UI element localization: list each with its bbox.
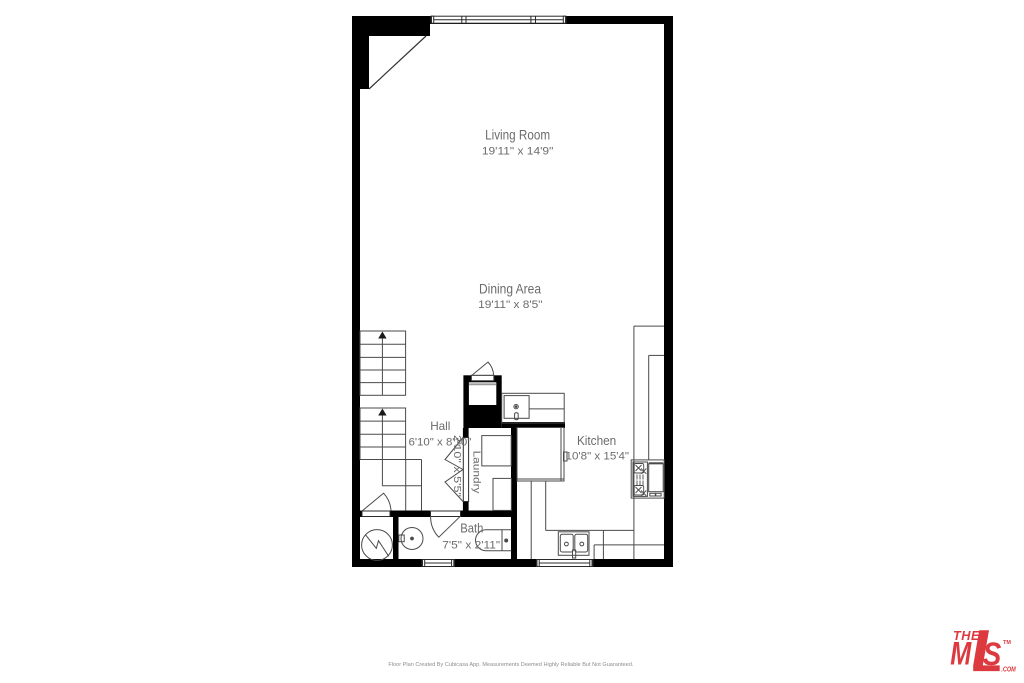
svg-text:Floor Plan Created By Cubicasa: Floor Plan Created By Cubicasa App. Meas… [388, 662, 633, 668]
svg-text:Bath: Bath [460, 521, 483, 536]
svg-text:10'8" x 15'4": 10'8" x 15'4" [566, 451, 630, 463]
svg-text:19'11" x 14'9": 19'11" x 14'9" [482, 146, 554, 158]
svg-text:19'11" x 8'5": 19'11" x 8'5" [478, 299, 542, 311]
svg-text:Laundry: Laundry [470, 451, 482, 495]
svg-text:Kitchen: Kitchen [577, 434, 616, 448]
svg-text:S: S [983, 636, 1002, 672]
svg-text:2'10" x 5'5": 2'10" x 5'5" [451, 435, 462, 498]
svg-text:TM: TM [1003, 640, 1011, 646]
svg-text:Hall: Hall [430, 419, 450, 433]
svg-text:.COM: .COM [1001, 664, 1016, 673]
svg-text:Living Room: Living Room [485, 127, 550, 143]
svg-text:M: M [950, 636, 972, 672]
svg-text:Dining Area: Dining Area [479, 280, 541, 296]
svg-text:7'5" x 2'11": 7'5" x 2'11" [442, 539, 500, 551]
